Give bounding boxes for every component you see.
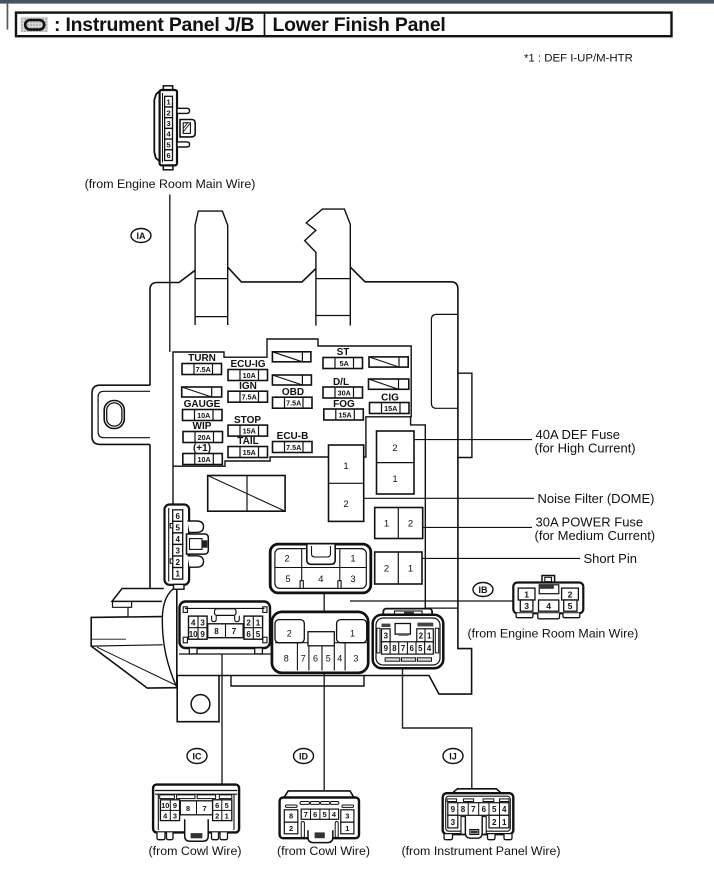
svg-text:TAIL: TAIL: [237, 436, 258, 447]
svg-text:5: 5: [225, 801, 229, 810]
svg-text:6: 6: [313, 654, 318, 664]
svg-text:5A: 5A: [340, 359, 349, 368]
svg-text:IB: IB: [479, 585, 489, 595]
svg-text:5: 5: [167, 140, 171, 149]
svg-text:2: 2: [343, 499, 348, 510]
svg-text:(for Medium Current): (for Medium Current): [535, 528, 656, 543]
svg-text:7.5A: 7.5A: [286, 443, 301, 452]
svg-text:2: 2: [287, 629, 292, 639]
svg-text:6: 6: [313, 810, 317, 819]
svg-text:2: 2: [392, 443, 397, 454]
svg-text:*1 : DEF I-UP/M-HTR: *1 : DEF I-UP/M-HTR: [524, 53, 633, 65]
svg-text:1: 1: [502, 818, 507, 827]
svg-text:STOP: STOP: [234, 415, 261, 426]
svg-text:5: 5: [175, 524, 180, 533]
svg-text:4: 4: [175, 535, 180, 544]
svg-text:2: 2: [492, 818, 497, 827]
svg-text:(from Cowl Wire): (from Cowl Wire): [149, 844, 242, 858]
svg-text:1: 1: [408, 564, 413, 575]
svg-text:15A: 15A: [384, 404, 397, 413]
svg-text:10A: 10A: [243, 371, 256, 380]
svg-text:9: 9: [200, 630, 205, 639]
svg-text:8: 8: [186, 804, 190, 813]
svg-text:8: 8: [461, 805, 466, 814]
svg-text:15A: 15A: [338, 410, 351, 419]
svg-text:IC: IC: [193, 752, 203, 762]
svg-text:GAUGE: GAUGE: [184, 399, 221, 410]
svg-text:30A POWER Fuse: 30A POWER Fuse: [536, 514, 644, 529]
svg-text:1: 1: [384, 519, 389, 530]
svg-text:6: 6: [167, 151, 171, 160]
svg-text:Noise Filter (DOME): Noise Filter (DOME): [538, 491, 655, 506]
svg-text:4: 4: [337, 654, 342, 664]
svg-text:4: 4: [427, 644, 432, 653]
svg-text:1: 1: [350, 553, 355, 564]
svg-text:7: 7: [471, 805, 476, 814]
svg-text:(from Instrument Panel Wire): (from Instrument Panel Wire): [401, 844, 560, 858]
svg-text:5: 5: [323, 810, 327, 819]
svg-text:1: 1: [343, 461, 348, 472]
svg-text:IA: IA: [137, 231, 147, 241]
svg-text:: Instrument Panel J/B: : Instrument Panel J/B: [54, 14, 255, 36]
svg-text:3: 3: [175, 547, 180, 556]
svg-text:3: 3: [173, 812, 177, 821]
svg-text:7: 7: [202, 804, 206, 813]
svg-text:OBD: OBD: [282, 387, 304, 398]
svg-text:8: 8: [214, 627, 219, 636]
svg-text:2: 2: [408, 519, 413, 530]
svg-text:8: 8: [284, 654, 289, 664]
svg-text:IJ: IJ: [449, 752, 457, 762]
svg-text:1: 1: [256, 619, 261, 628]
svg-text:2: 2: [568, 589, 573, 599]
svg-text:FOG: FOG: [333, 399, 355, 410]
svg-text:2: 2: [284, 553, 289, 564]
svg-text:9: 9: [173, 801, 177, 810]
svg-text:40A DEF Fuse: 40A DEF Fuse: [536, 427, 621, 442]
svg-text:5: 5: [285, 573, 290, 584]
svg-text:1: 1: [427, 632, 432, 641]
svg-text:3: 3: [200, 619, 205, 628]
svg-text:Short Pin: Short Pin: [584, 551, 637, 566]
svg-text:D/L: D/L: [333, 377, 349, 388]
svg-text:1: 1: [350, 629, 355, 639]
svg-text:3: 3: [167, 119, 171, 128]
svg-text:ID: ID: [299, 752, 309, 762]
svg-text:4: 4: [546, 601, 551, 611]
svg-text:7.5A: 7.5A: [196, 365, 211, 374]
svg-text:ECU-IG: ECU-IG: [231, 359, 266, 370]
svg-text:(for High Current): (for High Current): [535, 441, 636, 456]
svg-text:9: 9: [384, 644, 389, 653]
svg-text:2: 2: [419, 632, 424, 641]
svg-text:5: 5: [568, 601, 573, 611]
svg-text:2: 2: [246, 619, 251, 628]
svg-text:9: 9: [451, 805, 456, 814]
svg-text:7.5A: 7.5A: [242, 393, 257, 402]
svg-text:1: 1: [345, 824, 349, 833]
svg-text:6: 6: [410, 644, 415, 653]
svg-text:5: 5: [492, 805, 497, 814]
svg-text:ECU-B: ECU-B: [277, 431, 309, 442]
svg-text:5: 5: [418, 644, 423, 653]
svg-text:2: 2: [384, 564, 389, 575]
svg-text:20A: 20A: [198, 433, 211, 442]
svg-text:2: 2: [175, 558, 180, 567]
svg-text:1: 1: [524, 589, 529, 599]
svg-text:5: 5: [256, 630, 261, 639]
svg-text:3: 3: [451, 818, 456, 827]
svg-text:3: 3: [350, 573, 355, 584]
svg-text:7.5A: 7.5A: [286, 399, 301, 408]
svg-text:3: 3: [384, 632, 389, 641]
svg-text:(+1): (+1): [193, 443, 211, 454]
svg-text:(from Cowl Wire): (from Cowl Wire): [277, 844, 370, 858]
svg-text:1: 1: [167, 98, 171, 107]
svg-text:7: 7: [401, 644, 405, 653]
svg-text:1: 1: [225, 812, 229, 821]
svg-text:6: 6: [246, 630, 251, 639]
svg-text:1: 1: [175, 570, 180, 579]
svg-text:15A: 15A: [243, 427, 256, 436]
svg-text:WIP: WIP: [193, 421, 212, 432]
svg-text:6: 6: [175, 512, 180, 521]
svg-text:1: 1: [392, 474, 397, 485]
svg-text:6: 6: [482, 805, 487, 814]
svg-text:5: 5: [326, 654, 331, 664]
svg-text:3: 3: [353, 654, 358, 664]
svg-text:10: 10: [161, 801, 169, 810]
svg-text:8: 8: [392, 644, 397, 653]
svg-text:10A: 10A: [197, 411, 210, 420]
svg-text:3: 3: [345, 811, 349, 820]
svg-text:2: 2: [215, 812, 219, 821]
svg-text:ST: ST: [337, 347, 350, 358]
svg-text:Lower Finish Panel: Lower Finish Panel: [273, 14, 446, 36]
svg-text:(from Engine Room Main Wire): (from Engine Room Main Wire): [468, 627, 639, 641]
svg-text:7: 7: [301, 654, 306, 664]
svg-text:4: 4: [502, 805, 507, 814]
svg-text:IGN: IGN: [239, 381, 257, 392]
svg-text:8: 8: [289, 811, 293, 820]
svg-text:7: 7: [232, 627, 237, 636]
svg-text:10A: 10A: [197, 455, 210, 464]
svg-text:TURN: TURN: [188, 353, 216, 364]
svg-text:4: 4: [191, 619, 196, 628]
svg-text:30A: 30A: [338, 388, 351, 397]
svg-text:(from Engine Room Main Wire): (from Engine Room Main Wire): [85, 177, 256, 191]
svg-text:6: 6: [215, 801, 219, 810]
svg-text:15A: 15A: [243, 448, 256, 457]
svg-text:3: 3: [524, 601, 529, 611]
svg-text:7: 7: [304, 810, 308, 819]
svg-text:10: 10: [189, 630, 198, 639]
svg-text:4: 4: [318, 573, 323, 584]
svg-text:2: 2: [289, 824, 293, 833]
svg-text:2: 2: [167, 108, 171, 117]
